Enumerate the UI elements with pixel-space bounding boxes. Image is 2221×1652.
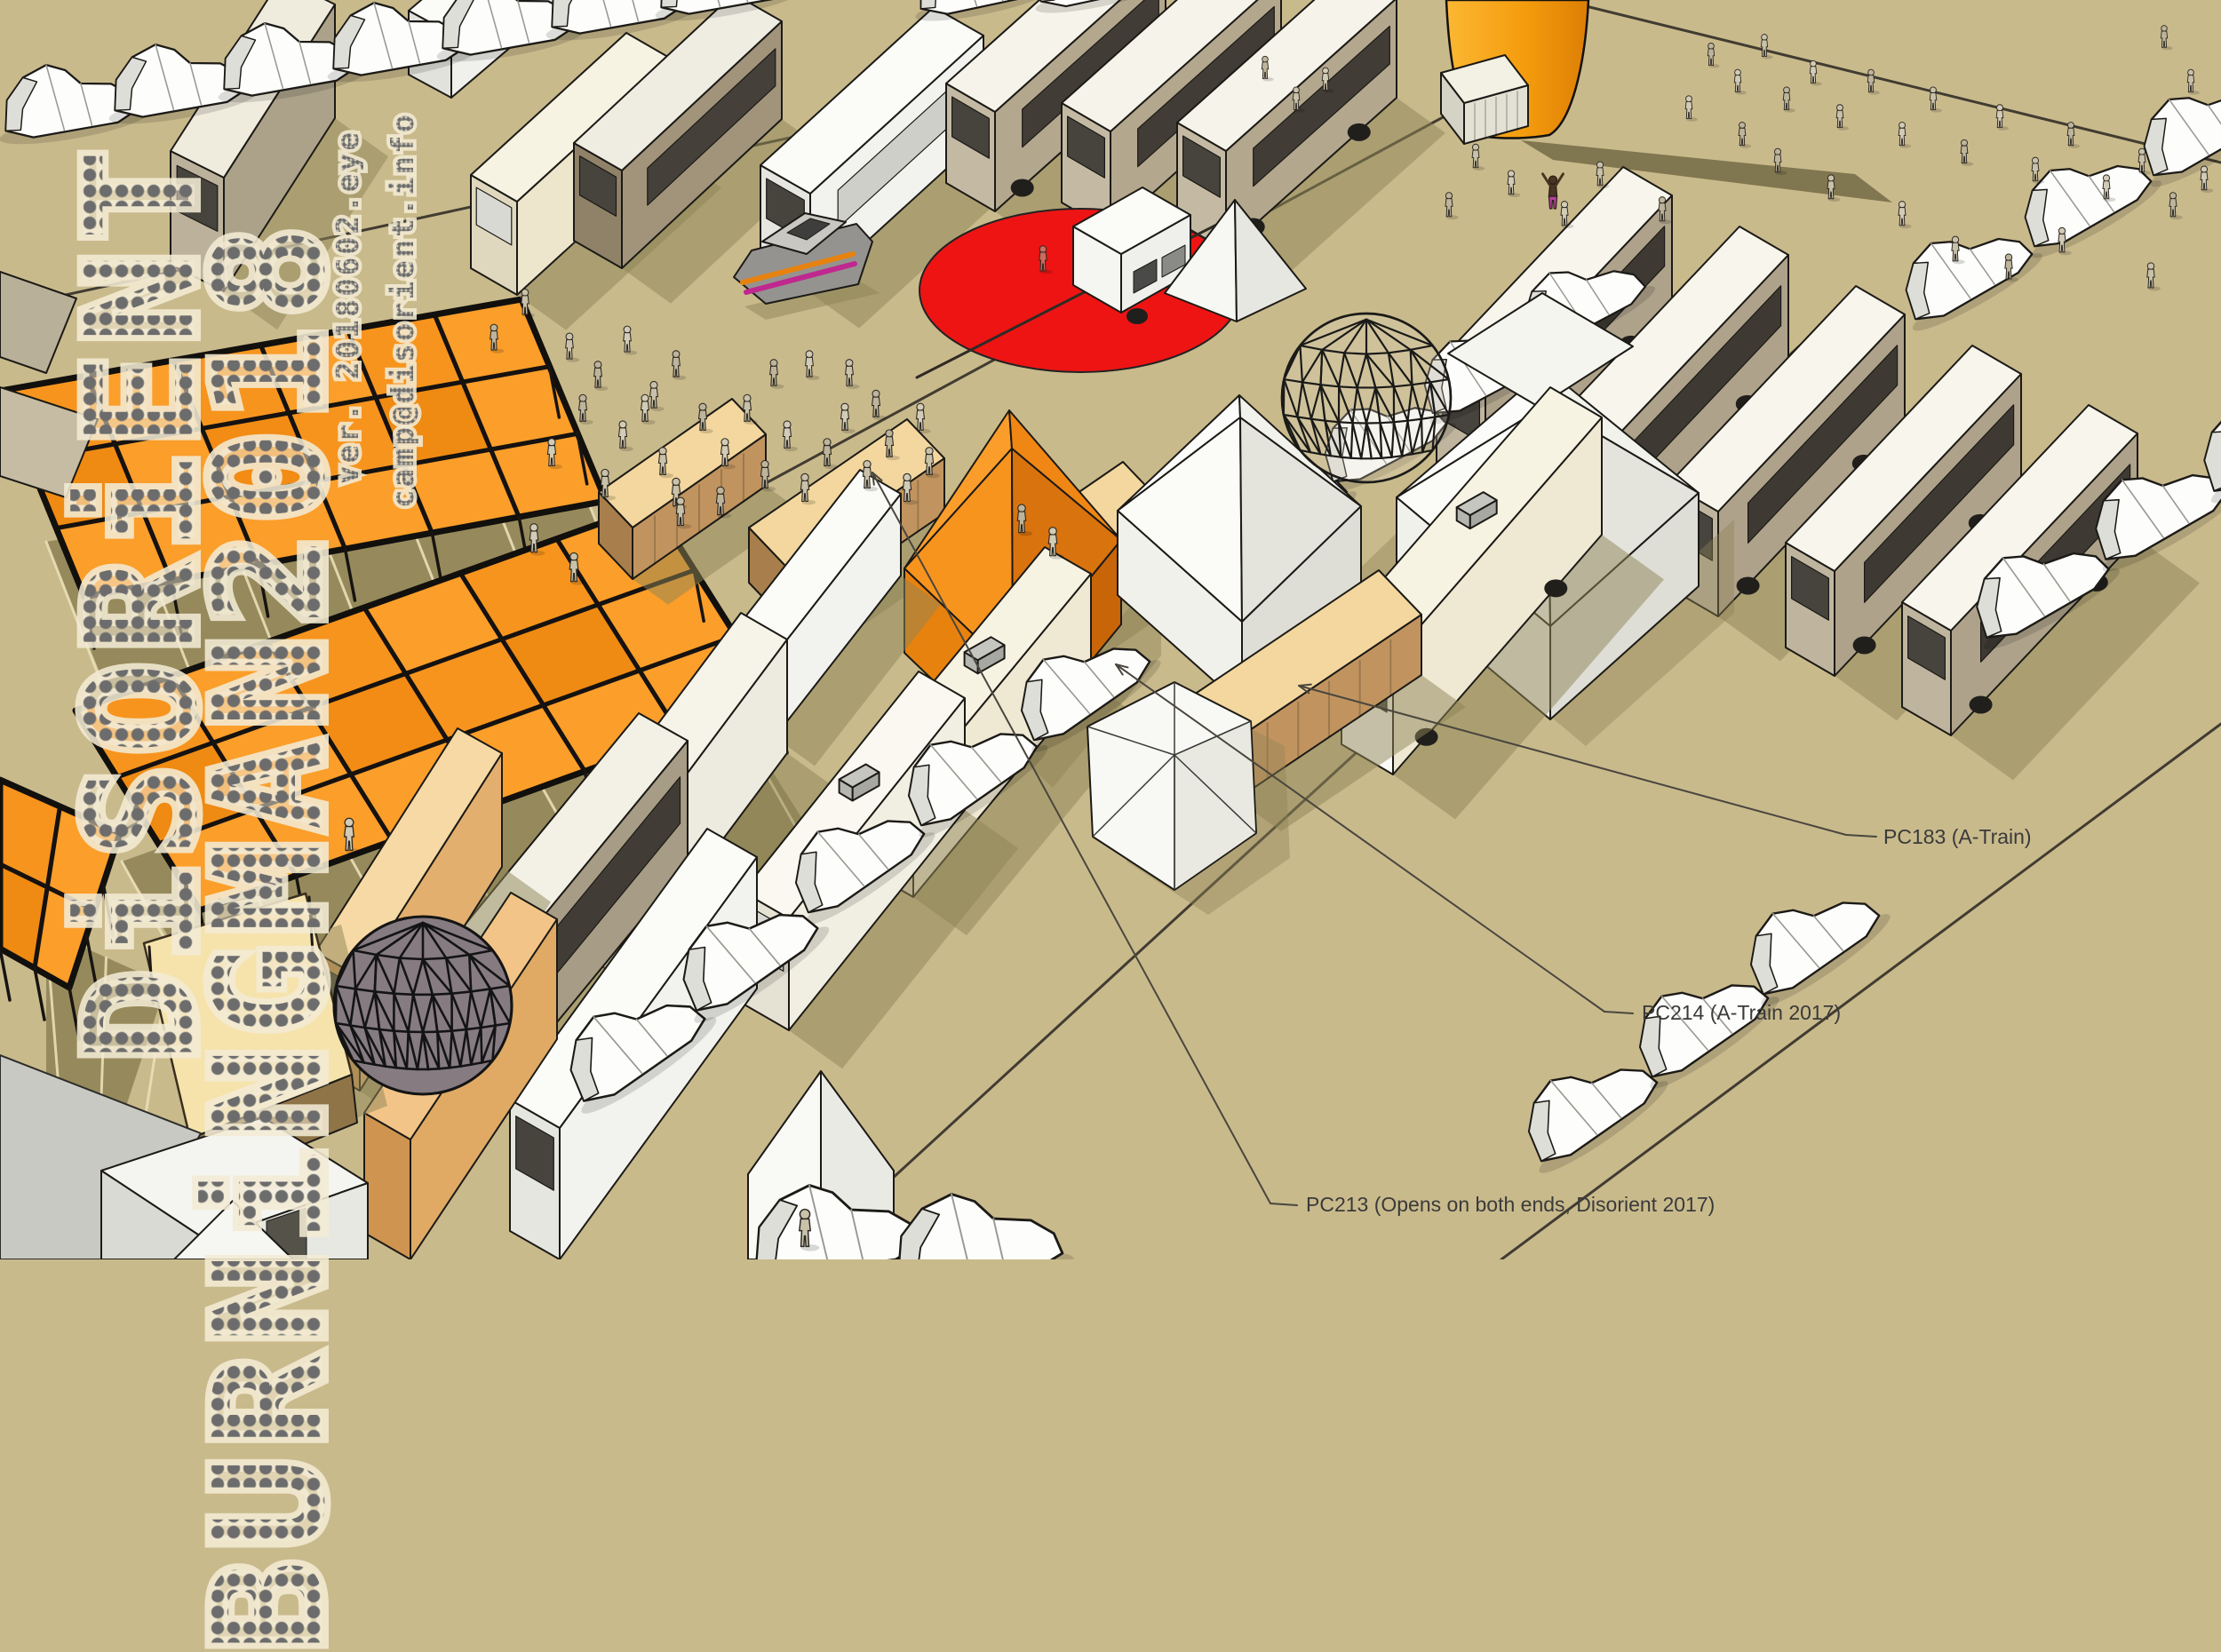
callout-pc214: PC214 (A-Train 2017): [1642, 1001, 1841, 1024]
model-canvas[interactable]: PC183 (A-Train) PC214 (A-Train 2017) PC2…: [0, 0, 2221, 1259]
callout-pc213: PC213 (Opens on both ends, Disorient 201…: [1306, 1193, 1715, 1216]
callout-pc183: PC183 (A-Train): [1883, 825, 2032, 848]
model-viewport[interactable]: PC183 (A-Train) PC214 (A-Train 2017) PC2…: [0, 0, 2221, 1259]
